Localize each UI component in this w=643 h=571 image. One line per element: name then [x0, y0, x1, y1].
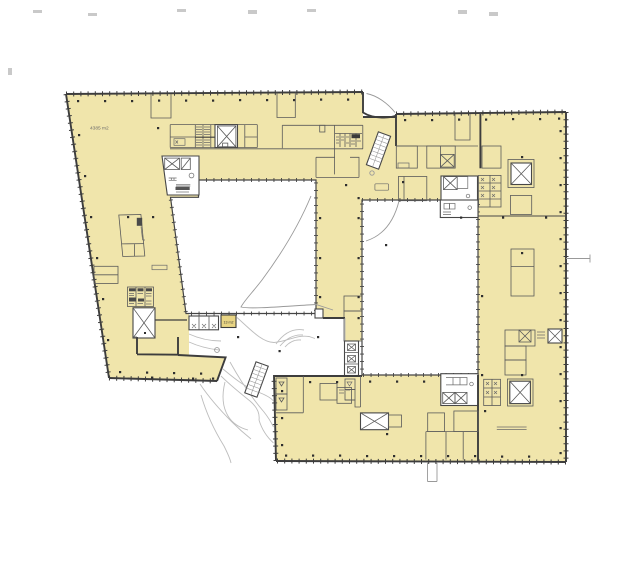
- svg-text:4385 m2: 4385 m2: [90, 126, 109, 132]
- svg-text:13 m2: 13 m2: [224, 320, 234, 324]
